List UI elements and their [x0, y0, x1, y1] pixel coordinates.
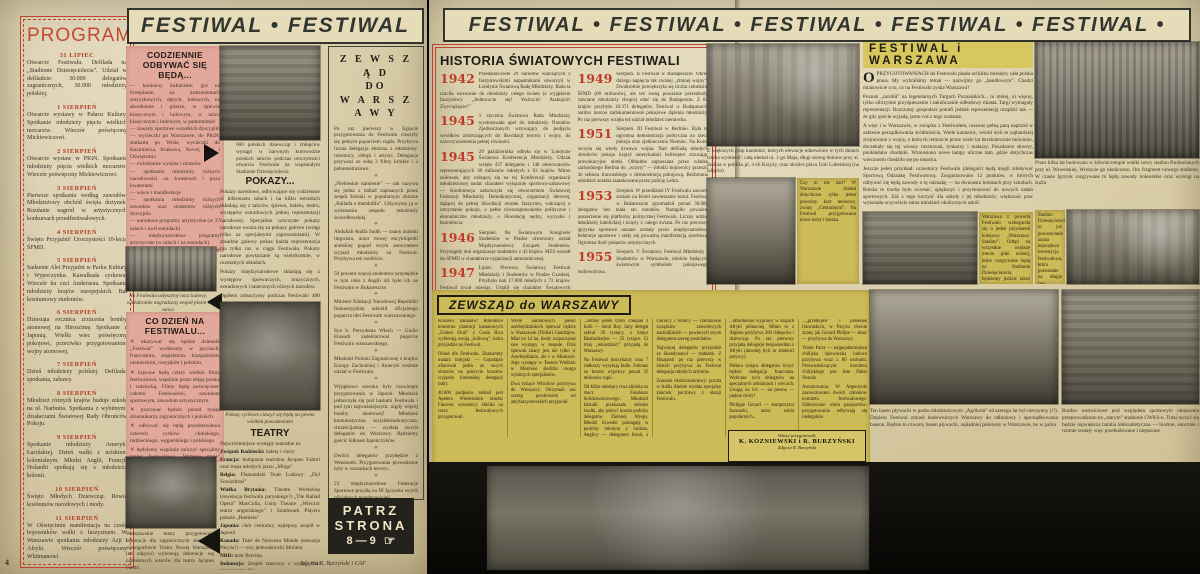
photo-kamienice: [707, 44, 859, 146]
zewszad-right-item: ...utrudnienia wyprawy w krajach Afryki …: [729, 319, 794, 361]
item-separator: ✳: [334, 263, 418, 271]
zewszad-left-entry: Po raz pierwszy w Egipcie przygotowania …: [334, 126, 418, 181]
note-dziesieciolecia-text: Stadion Dziesięciolecia to już powszechn…: [1035, 210, 1065, 284]
zewszad-right-item: Philippe Gerard — kompozytor francuski, …: [729, 403, 794, 421]
program-entry-date: 5 SIERPIEŃ: [27, 257, 127, 264]
program-entry-text: Dzień młodzieży polskiej. Defilada, spot…: [27, 369, 127, 385]
byline-photos: Zdjęcia R. Burzyński: [731, 445, 863, 450]
zewszad-left-entry: Wyjątkowo szeroko były rozwinięte przygo…: [334, 384, 418, 453]
historia-entry: 1942 Przedstawiciele 29 narodów walczący…: [440, 72, 571, 111]
historia-year: 1946: [440, 232, 475, 245]
fiw-title: FESTIWAL i WARSZAWA: [863, 42, 1033, 68]
photo-basen-agrikola: [870, 290, 1058, 404]
program-entry: 2 SIERPIEŃ Otwarcie wystaw w PKiN. Spotk…: [27, 148, 127, 179]
program-entry-date: 2 SIERPIEŃ: [27, 148, 127, 155]
zewszad-left-item: Po raz pierwszy w Egipcie przygotowania …: [334, 126, 418, 173]
codziennie-item: spotkania młodzieży różnych narodowości …: [130, 169, 220, 190]
byline-box: Teksty przygotowali: K. KOZNIEWSKI i R. …: [728, 430, 866, 462]
fiw-paragraph: Poznań „zarobił” na legendarnych Targach…: [863, 94, 1033, 121]
patrz-line2: STRONA: [335, 518, 408, 533]
historia-year: 1947: [440, 267, 475, 280]
program-entry-date: 3 SIERPIEŃ: [27, 185, 127, 192]
program-entry: 3 SIERPIEŃ Pierwsze spotkania według zaw…: [27, 185, 127, 224]
right-page: FESTIWAL • FESTIWAL • FESTIWAL • FESTIWA…: [429, 0, 1200, 574]
codziennie-item: wiece i manifestacje: [130, 190, 220, 197]
note-kort: Czy to nie żart? W Warszawie działał dot…: [797, 178, 859, 284]
program-entry-text: Pierwsze spotkania według zawodów. Młodz…: [27, 193, 127, 224]
section-co-dzien: CO DZIEŃ NA FESTIWALU... ukazywać się bę…: [126, 312, 224, 462]
zewszad-left-list: Po raz pierwszy w Egipcie przygotowania …: [334, 126, 418, 501]
historia-entry: 1946 Sierpień. Na Światowym Kongresie St…: [440, 231, 571, 264]
teatry-entry: Francja: kompania teatralna Jacques Fabb…: [220, 457, 320, 471]
item-separator: ✳: [334, 473, 418, 481]
program-box: PROGRAM 31 LIPIEC Otwarcie Festiwalu. De…: [20, 16, 134, 568]
program-entry-text: W Oświęcimiu manifestacja na cześć bojow…: [27, 523, 127, 562]
codziennie-item: konkursy kulturalne: gra na fortepianie,…: [130, 83, 220, 126]
photo-opening-dancers-caption: 600 polskich dziewcząt i chłopców wystąp…: [236, 142, 320, 176]
program-entry-text: Otwarcie wystawy w Pałacu Kultury. Spotk…: [27, 112, 127, 143]
zewszad-right-item: Od kilku miesięcy trwa zbiórka na rzecz …: [584, 385, 649, 437]
item-separator: ✳: [334, 291, 418, 299]
program-entry-date: 6 SIERPIEŃ: [27, 309, 127, 316]
photo-stadion-budowlanych-caption: Przez kilka lat budowano w żółwim tempie…: [1035, 160, 1199, 187]
program-entry-date: 7 SIERPIEŃ: [27, 361, 127, 368]
byline-names: K. KOZNIEWSKI i R. BURZYŃSKI: [731, 438, 863, 445]
arrow-left-big-icon: [198, 528, 220, 554]
pokazy-paragraphs: Pokazy narodowe, odbywające się codzienn…: [220, 189, 320, 300]
program-entry-date: 31 LIPIEC: [27, 52, 127, 59]
teatry-entry-country: Wielka Brytania:: [220, 487, 266, 493]
program-entry-text: Dziesiąta rocznica zrzucenia bomby atomo…: [27, 317, 127, 356]
zewszad-left-entry: „Niebieskie kamienie” — tak nazywa się j…: [334, 181, 418, 230]
zewszad-left-item: Syn b. Prezydenta Włoch — Giulio Einaudi…: [334, 328, 418, 348]
program-entry: 11 SIERPIEŃ W Oświęcimiu manifestacja na…: [27, 515, 127, 562]
item-separator: ✳: [334, 348, 418, 356]
teatry-entry: Belgia: Flamandzki Teatr Ludowy: „Dyl So…: [220, 472, 320, 486]
program-entry-date: 1 SIERPIEŃ: [27, 104, 127, 111]
fiw-paragraph: A więc i w Warszawie, w związku z Festiw…: [863, 123, 1033, 164]
codziennie-item: międzynarodowe programy artystyczne (w s…: [130, 233, 220, 247]
program-entry: 5 SIERPIEŃ Sadzenie Alei Przyjaźni w Par…: [27, 257, 127, 304]
zewszad-right-col-2: Wiele narodowych pieśni azerbejdżańskich…: [507, 319, 576, 437]
historia-year: 1942: [440, 73, 475, 86]
photo-circus-rig: [220, 302, 320, 410]
teatry-title: TEATRY: [220, 428, 320, 439]
program-entry: 12 SIERPIEŃ Zakończenie Igrzysk sportowy…: [27, 567, 127, 568]
program-entry: 31 LIPIEC Otwarcie Festiwalu. Defilada n…: [27, 52, 127, 99]
zewszad-right-item: Aresztowania: W Argentynie zaaresztowano…: [802, 385, 867, 421]
program-entry-date: 9 SIERPIEŃ: [27, 434, 127, 441]
zewszad-right-item: Violet Parra — najpopularniejsza chilijs…: [802, 346, 867, 382]
zewszad-left-item: Minister Edukacji Narodowej Republiki In…: [334, 299, 418, 319]
teatry-entry-country: Związek Radziecki:: [220, 449, 265, 455]
program-entry: 6 SIERPIEŃ Dziesiąta rocznica zrzucenia …: [27, 309, 127, 356]
program-entry-text: Święto Przyjaźni! Uroczystości 10-lecia …: [27, 237, 127, 253]
zewszad-right-item: ...„przebojów” i piosenek francuskich, w…: [802, 319, 867, 343]
left-banner: FESTIWAL • FESTIWAL: [127, 8, 424, 44]
program-entry: 7 SIERPIEŃ Dzień młodzieży polskiej. Def…: [27, 361, 127, 385]
teatry-entry-text: balety i chóry: [266, 449, 295, 455]
codziennie-item: narodowe programy artystyczne (w 37 sala…: [130, 218, 220, 232]
zewszad-left-entry: Abdullah Atafia Sadik — znany arabski li…: [334, 229, 418, 271]
zewszad-left-entry: 50 procent więcej studentów przybędzie w…: [334, 271, 418, 299]
zewszad-right-col-4: Górnicy i rolnicy — członkowie związków …: [652, 319, 721, 437]
teatry-entry-country: Francja:: [220, 457, 240, 463]
historia-title: HISTORIA ŚWIATOWYCH FESTIWALI: [440, 53, 708, 68]
zewszad-right-item: Na Festiwal koszykarzy oraz 7 siatkarzy …: [584, 358, 649, 382]
historia-column-1: 1942 Przedstawiciele 29 narodów walczący…: [440, 72, 571, 298]
teatry-entry: Japonia: chór centralny, najlepszy zespó…: [220, 523, 320, 537]
historia-year: 1955: [578, 251, 613, 264]
photo-stadion-cwks-caption: Bardzo wartościowe pod względem sportowy…: [1062, 408, 1199, 435]
teatry-intro: Najwybitniejsze występy teatralne to:: [220, 441, 320, 448]
historia-year: 1951: [578, 128, 613, 141]
program-entries: 31 LIPIEC Otwarcie Festiwalu. Defilada n…: [27, 52, 127, 568]
program-entry-date: 4 SIERPIEŃ: [27, 229, 127, 236]
zewszad-left-title: Z E W S Z Ą D DO W A R S Z A W Y: [334, 53, 418, 121]
teatry-list: Związek Radziecki: balety i chóry Francj…: [220, 449, 320, 570]
co-dzien-item: kręcone będą cztery wielkie filmy festiw…: [130, 370, 220, 406]
pokazy-paragraph: Pokazy narodowe, odbywające się codzienn…: [220, 189, 320, 267]
historia-year: 1953: [578, 190, 613, 203]
pokazy-paragraph: Ogółem zobaczymy podczas Festiwalu 400 p…: [220, 293, 320, 300]
note-railway-text: Warszawa z powodu Festiwalu wzbogaciła s…: [979, 212, 1033, 284]
zewszad-right-item: Półtora tysiąca delegatów liczyć będzie …: [729, 364, 794, 400]
codziennie-list: konkursy kulturalne: gra na fortepianie,…: [130, 83, 220, 252]
program-entry: 8 SIERPIEŃ Młodzież różnych krajów buduj…: [27, 390, 127, 429]
zewszad-right-item: ...zebrał jeden tylko chłopak z Indii — …: [584, 319, 649, 355]
codziennie-item: spotkania młodzieży różnych zawodów oraz…: [130, 197, 220, 218]
historia-year: 1945: [440, 151, 475, 164]
zewszad-right-title: ZEWSZĄD do WARSZAWY: [437, 295, 631, 315]
teatry-entry: NRD: teatr Brechta: [220, 553, 320, 560]
codziennie-item: zawody sportowe wszelkich dyscyplin: [130, 126, 220, 133]
section-zewszad-right: ZEWSZĄD do WARSZAWY Królowa bananów! Rob…: [432, 290, 870, 466]
program-entry-date: 11 SIERPIEŃ: [27, 515, 127, 522]
zewszad-right-item: Wiele narodowych pieśni azerbejdżańskich…: [511, 319, 576, 379]
program-entry-date: 8 SIERPIEŃ: [27, 390, 127, 397]
item-separator: ✳: [334, 320, 418, 328]
zewszad-left-item: Abdullah Atafia Sadik — znany arabski li…: [334, 229, 418, 263]
co-dzien-item: odbywać się będą przedstawienia czterech…: [130, 423, 220, 444]
codziennie-item: zwiedzanie wystaw i muzeów: [130, 161, 220, 168]
historia-year: 1949: [578, 73, 613, 86]
program-entry-text: Spotkanie młodzieży Ameryki Łacińskiej. …: [27, 442, 127, 481]
note-dziesieciolecia: Stadion Dziesięciolecia to już powszechn…: [1035, 210, 1065, 284]
program-entry-text: Otwarcie wystaw w PKiN. Spotkanie młodzi…: [27, 156, 127, 179]
section-zewszad-left: Z E W S Z Ą D DO W A R S Z A W Y Po raz …: [328, 46, 424, 500]
arrow-right-icon: [204, 144, 219, 162]
program-entry-date: 10 SIERPIEŃ: [27, 486, 127, 493]
program-title: PROGRAM: [27, 25, 127, 47]
photo-folk-ensemble-caption: Na Festiwalu usłyszymy nasz ludowy, wiel…: [126, 293, 210, 313]
pokazy-paragraph: Pokazy międzynarodowe składają się z wys…: [220, 269, 320, 290]
historia-year: 1945: [440, 115, 475, 128]
historia-entry: 1945 29 października odbyła się w Londyn…: [440, 150, 571, 228]
co-dzien-item: ukazywać się będzie dziennik „Festiwal” …: [130, 339, 220, 368]
right-banner: FESTIWAL • FESTIWAL • FESTIWAL • FESTIWA…: [443, 8, 1191, 42]
fiw-paragraph: O PRZYGOTOWANIACH do Festiwalu pisała od…: [863, 71, 1033, 92]
zewszad-right-col-6: ...„przebojów” i piosenek francuskich, w…: [798, 319, 867, 437]
program-entry-date: 12 SIERPIEŃ: [27, 567, 127, 568]
zewszad-right-item: Królowa bananów! Robotnice koncernu plan…: [438, 319, 503, 349]
program-entry-text: Otwarcie Festiwalu. Defilada na „Stadion…: [27, 60, 127, 99]
zewszad-left-entry: Minister Edukacji Narodowej Republiki In…: [334, 299, 418, 327]
zewszad-right-item: Górnicy i rolnicy — członkowie związków …: [656, 319, 721, 343]
zewszad-left-entry: Młodzież Polonii Zagranicznej z krajów E…: [334, 356, 418, 384]
zewszad-left-item: „Niebieskie kamienie” — tak nazywa się j…: [334, 181, 418, 222]
teatry-entry: Kanada: Teatr de Nouveau Monde (sensacja…: [220, 538, 320, 552]
zewszad-left-entry: Syn b. Prezydenta Włoch — Giulio Einaudi…: [334, 328, 418, 356]
teatry-entry: Związek Radziecki: balety i chóry: [220, 449, 320, 456]
page-number: 4: [5, 558, 9, 567]
codziennie-title: CODZIENNIE ODBYWAĆ SIĘ BĘDĄ...: [130, 50, 220, 80]
teatry-entry-country: Belgia:: [220, 472, 236, 478]
zewszad-right-item: Znaczek okolicznościowy: poczta w Addis …: [656, 379, 721, 403]
teatry-entry-country: Japonia:: [220, 523, 240, 529]
item-separator: ✳: [334, 445, 418, 453]
item-separator: ✳: [334, 173, 418, 181]
zewszad-right-col-3: ...zebrał jeden tylko chłopak z Indii — …: [580, 319, 649, 437]
section-historia: HISTORIA ŚWIATOWYCH FESTIWALI 1942 Przed…: [432, 44, 716, 298]
teatry-entry: Wielka Brytania: Theatre Workshop (rewel…: [220, 487, 320, 522]
section-pokazy: POKAZY... Pokazy narodowe, odbywające si…: [220, 176, 320, 300]
zewszad-left-item: 50 procent więcej studentów przybędzie w…: [334, 271, 418, 291]
photo-folk-ensemble: [126, 247, 216, 291]
patrz-pages: 8—9: [347, 535, 379, 547]
zewszad-right-col-5: ...utrudnienia wyprawy w krajach Afryki …: [725, 319, 794, 437]
left-page: PROGRAM 31 LIPIEC Otwarcie Festiwalu. De…: [0, 0, 427, 574]
zewszad-right-item: Dwa tysiące Włochów przybywa do Warszawy…: [511, 382, 576, 406]
patrz-strona-box: PATRZ STRONA 8—9☞: [328, 498, 414, 554]
zewszad-right-item: Najwięcej delegatów przyjedzie ze Skandy…: [656, 346, 721, 376]
co-dzien-list: ukazywać się będzie dziennik „Festiwal” …: [130, 339, 220, 462]
teatry-entry-country: NRD:: [220, 553, 233, 559]
newspaper-spread: PROGRAM 31 LIPIEC Otwarcie Festiwalu. De…: [0, 0, 1200, 574]
co-dzien-item: pracować będzie ponad tysiąc dziennikarz…: [130, 407, 220, 421]
section-festiwal-i-warszawa: FESTIWAL i WARSZAWA O PRZYGOTOWANIACH do…: [863, 42, 1033, 210]
zewszad-left-item: Wyjątkowo szeroko były rozwinięte przygo…: [334, 384, 418, 445]
photo-stadion-cwks: [1062, 290, 1199, 404]
zewszad-left-item: Młodzież Polonii Zagranicznej z krajów E…: [334, 356, 418, 376]
historia-entry: 1955 Sierpień. V Światowy Festiwal Młodz…: [578, 250, 709, 276]
section-teatry: TEATRY Najwybitniejsze występy teatralne…: [220, 428, 320, 570]
historia-column-2: 1949 Sierpień. II Festiwal w Budapeszcie…: [578, 72, 709, 298]
zewszad-left-entry: Dwóch delegatów przybędzie z Wenezueli. …: [334, 453, 418, 481]
pointing-hand-icon: ☞: [384, 533, 396, 549]
historia-entry: 1949 Sierpień. II Festiwal w Budapeszcie…: [578, 72, 709, 124]
teatry-entry-text: teatr Brechta: [235, 553, 262, 559]
photo-park-crowd: [487, 466, 869, 570]
program-entry-text: Młodzież różnych krajów buduje szkołę na…: [27, 398, 127, 429]
photo-railway-stop: [863, 212, 977, 284]
teatry-entry-country: Indonezja:: [220, 561, 244, 567]
program-entry-text: Sadzenie Alei Przyjaźni w Parku Kultury …: [27, 265, 127, 304]
program-entry: 9 SIERPIEŃ Spotkanie młodzieży Ameryki Ł…: [27, 434, 127, 481]
program-entry-text: Święto Młodych Dziewcząt. Rewia kostiumó…: [27, 494, 127, 510]
photo-theatre-workshop: [126, 457, 216, 528]
photo-circus-rig-caption: Pokazy cyrkowe cieszyć się będą na pewno…: [222, 412, 318, 426]
historia-entry: 1951 Sierpień. III Festiwal w Berlinie. …: [578, 127, 709, 186]
photo-stadion-budowlanych: [1035, 42, 1199, 158]
program-entry: 1 SIERPIEŃ Otwarcie wystawy w Pałacu Kul…: [27, 104, 127, 143]
note-railway: Warszawa z powodu Festiwalu wzbogaciła s…: [979, 212, 1033, 284]
program-entry: 10 SIERPIEŃ Święto Młodych Dziewcząt. Re…: [27, 486, 127, 510]
historia-entry: 1953 Sierpień. W przeddzień IV Festiwalu…: [578, 189, 709, 248]
photo-basen-caption: Ten basen pływacki w parku młodzieżowym …: [870, 408, 1058, 428]
historia-entry: 1945 1 stycznia Światowa Rada Młodzieży …: [440, 114, 571, 147]
patrz-line1: PATRZ: [343, 503, 399, 518]
zewszad-right-col-1: Królowa bananów! Robotnice koncernu plan…: [435, 319, 503, 437]
program-entry: 4 SIERPIEŃ Święto Przyjaźni! Uroczystośc…: [27, 229, 127, 253]
teatry-entry-country: Kanada:: [220, 538, 240, 544]
photo-kamienice-caption: Z większych grup kamienic, których elewa…: [707, 148, 859, 175]
zewszad-right-item: Obiad dla Festiwalu. Znakomity malarz in…: [438, 352, 503, 388]
fiw-paragraph: Jeszcze jeden przykład: uczestnicy Festi…: [863, 166, 1033, 207]
zewszad-right-item: 40.000 podpisów zebrali pod Apelem Wiede…: [438, 391, 503, 421]
photo-stadion-dziesieciolecia: [1067, 210, 1199, 284]
pokazy-title: POKAZY...: [220, 176, 320, 187]
photo-stadion-agrykola: [707, 178, 795, 284]
item-separator: ✳: [334, 376, 418, 384]
co-dzien-title: CO DZIEŃ NA FESTIWALU...: [130, 316, 220, 336]
photo-opening-dancers: [220, 46, 320, 140]
photo-credit: Zdjęcia R. Burzyński i CAF: [300, 561, 366, 567]
fiw-paragraphs: O PRZYGOTOWANIACH do Festiwalu pisała od…: [863, 71, 1033, 207]
note-kort-text: Czy to nie żart? W Warszawie działał dot…: [797, 178, 859, 228]
zewszad-left-item: Dwóch delegatów przybędzie z Wenezueli. …: [334, 453, 418, 473]
